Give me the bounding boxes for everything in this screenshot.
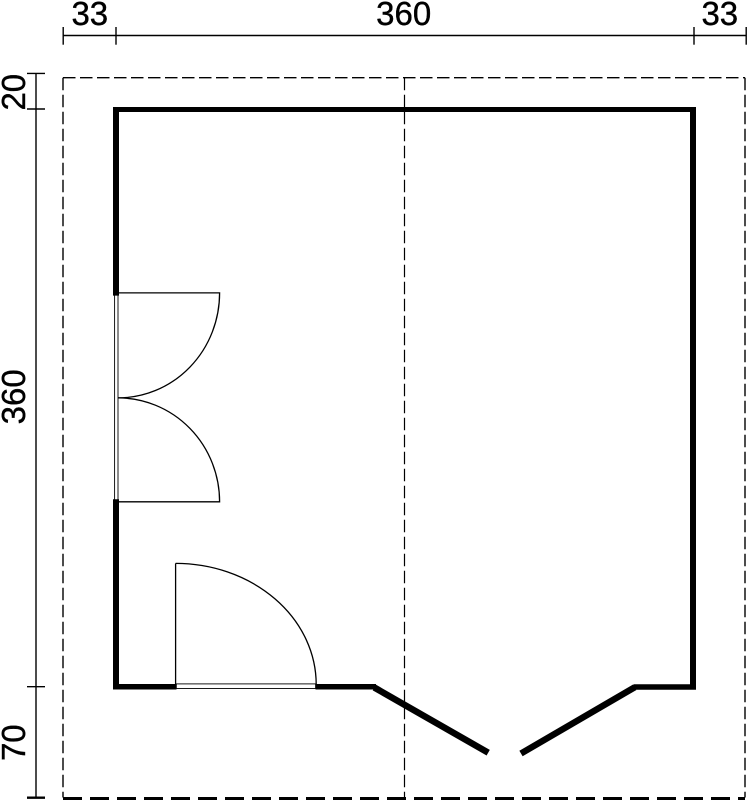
- svg-text:20: 20: [0, 74, 32, 111]
- svg-text:70: 70: [0, 724, 32, 761]
- svg-text:33: 33: [701, 0, 738, 32]
- svg-text:360: 360: [0, 369, 32, 424]
- svg-text:360: 360: [376, 0, 431, 32]
- svg-text:33: 33: [71, 0, 108, 32]
